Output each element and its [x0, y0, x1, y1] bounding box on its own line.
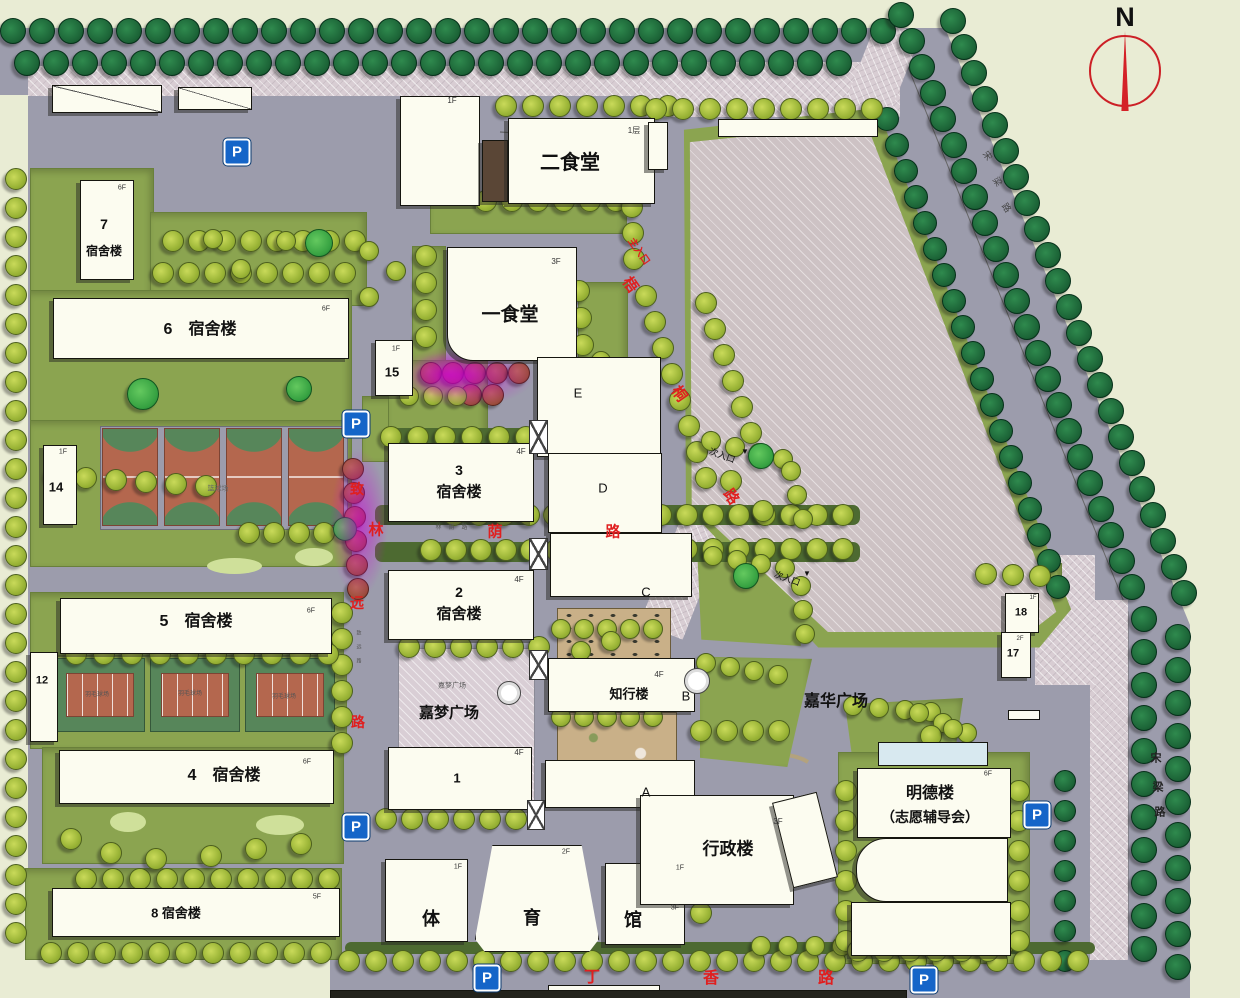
tree-light: [834, 98, 856, 120]
tree-light: [620, 619, 640, 639]
tree-light: [699, 98, 721, 120]
tree-dark: [841, 18, 867, 44]
map-label-二食堂: 二食堂: [540, 153, 600, 173]
tree-light: [204, 262, 226, 284]
tree-dark: [1035, 242, 1061, 268]
tree-dark: [362, 50, 388, 76]
tree-light: [291, 868, 313, 890]
tree-light: [807, 98, 829, 120]
tree-light: [178, 262, 200, 284]
map-label-篮球场: 篮球场: [208, 486, 229, 493]
map-label-2: 2: [455, 585, 463, 599]
mingde-mid: [856, 838, 1008, 902]
mingde-bottom: [851, 902, 1011, 956]
tree-dark: [940, 8, 966, 34]
tree-dark: [1014, 190, 1040, 216]
tree-light: [787, 485, 807, 505]
tree-dark: [1131, 936, 1157, 962]
map-label-3F: 3F: [773, 818, 782, 826]
map-label-宿舍楼: 宿舍楼: [86, 245, 122, 257]
map-label-6F: 6F: [303, 759, 311, 766]
tree-dark: [923, 237, 947, 261]
tree-light: [102, 868, 124, 890]
map-label-荫: 荫: [487, 525, 502, 540]
tree-light: [662, 950, 684, 972]
tree-light: [574, 619, 594, 639]
tree-light: [338, 950, 360, 972]
tree-dark: [1165, 690, 1191, 716]
tree-dark: [696, 18, 722, 44]
tree-light: [94, 942, 116, 964]
tree-dark: [710, 50, 736, 76]
tree-light: [793, 509, 813, 529]
tree-light: [500, 950, 522, 972]
tree-dark: [304, 50, 330, 76]
tree-dark: [951, 34, 977, 60]
bldg-E: [537, 357, 661, 457]
tree-light: [375, 808, 397, 830]
zhixing-bldg: [548, 658, 695, 712]
tree-dark: [826, 50, 852, 76]
map-label-明德楼: 明德楼: [906, 786, 954, 802]
map-label-4F: 4F: [516, 448, 525, 456]
tree-light: [331, 680, 353, 702]
tree-dark: [377, 18, 403, 44]
tree-dark: [1054, 770, 1076, 792]
lawn-blob-2: [110, 812, 146, 832]
covered-bridge-2: [529, 650, 548, 680]
tree-dark: [275, 50, 301, 76]
map-label-4F: 4F: [514, 576, 523, 584]
tree-bright: [305, 229, 333, 257]
map-label-1F: 1F: [447, 97, 456, 105]
tree-dark: [1045, 268, 1071, 294]
campus-map: 二食堂1层1F一食堂3F1F15EDCBA6F7宿舍楼6F6 宿舍楼1F14篮球…: [0, 0, 1240, 998]
tree-light: [40, 942, 62, 964]
tree-dark: [1054, 800, 1076, 822]
map-label-3F: 3F: [551, 258, 560, 266]
tree-light: [806, 538, 828, 560]
tree-dark: [951, 158, 977, 184]
tree-bright: [733, 563, 759, 589]
tree-dark: [551, 18, 577, 44]
carport-west-2: [178, 87, 252, 110]
parking-sign-5: P: [1024, 802, 1051, 829]
tree-dark: [768, 50, 794, 76]
tree-light: [105, 469, 127, 491]
tree-light: [551, 619, 571, 639]
tree-dark: [580, 18, 606, 44]
tree-light: [768, 665, 788, 685]
map-label-4 宿舍楼: 4 宿舍楼: [188, 768, 261, 784]
map-label-1F: 1F: [392, 346, 400, 353]
tree-light: [861, 98, 883, 120]
tree-light: [522, 95, 544, 117]
tree-dark: [1165, 822, 1191, 848]
tree-dark: [812, 18, 838, 44]
tree-dark: [920, 80, 946, 106]
tree-light: [702, 504, 724, 526]
tree-light: [835, 870, 857, 892]
tree-dark: [217, 50, 243, 76]
map-label-远: 远: [356, 646, 361, 651]
bottom-dark-bar: [330, 990, 907, 998]
tree-light: [145, 848, 167, 870]
tree-light: [643, 619, 663, 639]
tree-light: [832, 538, 854, 560]
tree-light: [603, 95, 625, 117]
tree-light: [237, 868, 259, 890]
map-label-羽毛球场: 羽毛球场: [272, 694, 296, 700]
tree-light: [753, 98, 775, 120]
tree-light: [359, 287, 379, 307]
tree-dark: [1109, 548, 1135, 574]
tree-light: [5, 197, 27, 219]
tree-light: [5, 893, 27, 915]
map-label-知行楼: 知行楼: [609, 688, 648, 701]
tree-light: [148, 942, 170, 964]
sidewalk-pavement-3: [1090, 600, 1128, 960]
map-label-6F: 6F: [118, 185, 126, 192]
tree-light: [505, 808, 527, 830]
map-label-1F: 1F: [1029, 595, 1036, 601]
tree-light: [264, 868, 286, 890]
map-label-C: C: [641, 586, 650, 599]
tree-light: [5, 661, 27, 683]
tree-light: [162, 230, 184, 252]
canteen-wall: [482, 140, 508, 202]
tree-dark: [989, 419, 1013, 443]
tree-light: [5, 168, 27, 190]
tree-dark: [961, 60, 987, 86]
tree-dark: [72, 50, 98, 76]
canteen-2-wing: [648, 122, 668, 170]
map-label-12: 12: [36, 676, 48, 687]
tree-light: [5, 690, 27, 712]
tree-dark: [1131, 870, 1157, 896]
tree-dark: [982, 112, 1008, 138]
tree-light: [256, 262, 278, 284]
tree-light: [5, 719, 27, 741]
tree-light: [676, 504, 698, 526]
tree-dark: [435, 18, 461, 44]
map-label-4F: 4F: [654, 671, 663, 679]
tree-dark: [1046, 392, 1072, 418]
tree-dark: [667, 18, 693, 44]
tree-light: [5, 777, 27, 799]
tree-light: [644, 311, 666, 333]
tree-light: [1013, 950, 1035, 972]
tree-dark: [333, 50, 359, 76]
tree-dark: [1129, 476, 1155, 502]
tree-dark: [1165, 789, 1191, 815]
tree-dark: [449, 50, 475, 76]
tree-dark: [1056, 294, 1082, 320]
map-label-A: A: [642, 786, 651, 799]
tree-light: [308, 262, 330, 284]
map-label-14: 14: [49, 481, 63, 494]
tree-dark: [1131, 606, 1157, 632]
tree-light: [156, 868, 178, 890]
tree-dark: [999, 445, 1023, 469]
tree-dark: [783, 18, 809, 44]
tree-light: [780, 98, 802, 120]
map-label-5F: 5F: [313, 894, 321, 901]
tree-dark: [797, 50, 823, 76]
tree-dark: [1131, 837, 1157, 863]
tree-dark: [980, 393, 1004, 417]
tree-dark: [406, 18, 432, 44]
tree-dark: [1165, 723, 1191, 749]
tree-light: [415, 326, 437, 348]
tree-dark: [1165, 855, 1191, 881]
tree-light: [704, 318, 726, 340]
tree-light: [752, 500, 774, 522]
tree-light: [288, 522, 310, 544]
lawn-blob-1: [295, 548, 333, 566]
tree-dark: [1024, 216, 1050, 242]
tree-dark: [754, 18, 780, 44]
tree-light: [716, 950, 738, 972]
tree-light: [5, 400, 27, 422]
parking-sign-1: P: [343, 411, 370, 438]
tree-light: [5, 226, 27, 248]
tree-dark: [972, 210, 998, 236]
tree-dark: [159, 50, 185, 76]
tree-light: [652, 337, 674, 359]
tree-light: [1008, 930, 1030, 952]
tree-dark: [885, 133, 909, 157]
map-label-路: 路: [351, 715, 365, 729]
tree-bright: [748, 443, 774, 469]
tree-light: [5, 574, 27, 596]
tree-dark: [1066, 320, 1092, 346]
tree-light: [661, 363, 683, 385]
tree-light: [943, 719, 963, 739]
tree-dark: [203, 18, 229, 44]
map-label-丁: 丁: [584, 970, 600, 986]
tree-dark: [522, 18, 548, 44]
tree-dark: [1131, 672, 1157, 698]
map-label-路: 路: [356, 660, 361, 665]
tree-dark: [565, 50, 591, 76]
tree-dark: [1035, 366, 1061, 392]
map-label-6F: 6F: [307, 608, 315, 615]
tree-dark: [983, 236, 1009, 262]
tree-light: [401, 808, 423, 830]
tree-dark: [962, 184, 988, 210]
tree-light: [716, 720, 738, 742]
map-label-梁: 梁: [1153, 783, 1164, 794]
map-label-远: 远: [350, 596, 364, 610]
tree-dark: [130, 50, 156, 76]
tree-dark: [1119, 450, 1145, 476]
tree-dark: [348, 18, 374, 44]
tree-light: [5, 603, 27, 625]
tree-dark: [246, 50, 272, 76]
tree-light: [386, 261, 406, 281]
gym-ti: [385, 859, 468, 942]
tree-dark: [1119, 574, 1145, 600]
tree-light: [5, 255, 27, 277]
map-label-E: E: [574, 387, 583, 400]
tree-light: [5, 342, 27, 364]
tree-dark: [188, 50, 214, 76]
tree-dark: [1098, 522, 1124, 548]
tree-dark: [1131, 639, 1157, 665]
tree-light: [795, 624, 815, 644]
tree-dark: [638, 18, 664, 44]
tree-light: [5, 371, 27, 393]
bldg-C: [550, 533, 692, 597]
tree-dark: [1054, 830, 1076, 852]
tree-light: [728, 504, 750, 526]
tree-dark: [1008, 471, 1032, 495]
tree-light: [1008, 900, 1030, 922]
north-label: N: [1089, 2, 1161, 33]
tree-light: [129, 868, 151, 890]
tree-light: [495, 539, 517, 561]
compass-needle-icon: [1118, 31, 1133, 111]
tree-light: [975, 563, 997, 585]
tree-light: [152, 262, 174, 284]
tree-light: [835, 780, 857, 802]
map-label-1F: 1F: [676, 865, 684, 872]
tree-light: [5, 516, 27, 538]
map-label-6F: 6F: [322, 306, 330, 313]
tree-dark: [1165, 954, 1191, 980]
tree-light: [415, 245, 437, 267]
tree-light: [576, 95, 598, 117]
tree-light: [672, 98, 694, 120]
tree-dark: [899, 28, 925, 54]
tree-dark: [101, 50, 127, 76]
tree-dark: [913, 211, 937, 235]
map-label-（志愿辅导会）: （志愿辅导会）: [881, 810, 979, 824]
tree-dark: [536, 50, 562, 76]
tree-dark: [904, 185, 928, 209]
tree-bright: [286, 376, 312, 402]
carport-west: [52, 85, 162, 113]
tree-light: [635, 950, 657, 972]
tree-light: [202, 942, 224, 964]
tree-light: [781, 461, 801, 481]
tree-light: [1008, 870, 1030, 892]
dorm-3: [388, 443, 534, 522]
tree-light: [175, 942, 197, 964]
map-label-B: B: [682, 690, 691, 703]
tree-dark: [420, 50, 446, 76]
tree-dark: [1056, 418, 1082, 444]
tree-light: [5, 284, 27, 306]
tree-dark: [116, 18, 142, 44]
map-label-路: 路: [605, 525, 620, 540]
tree-dark: [145, 18, 171, 44]
map-label-林荫路: 林荫路: [435, 525, 474, 531]
tree-light: [1008, 780, 1030, 802]
map-label-7: 7: [100, 217, 108, 231]
tree-light: [722, 370, 744, 392]
tree-dark: [391, 50, 417, 76]
tree-light: [601, 631, 621, 651]
tree-light: [832, 504, 854, 526]
tree-dark: [942, 289, 966, 313]
tree-light: [479, 808, 501, 830]
gym-yu: [475, 845, 599, 952]
tree-light: [229, 942, 251, 964]
tree-dark: [1165, 921, 1191, 947]
map-label-宋: 宋: [1151, 754, 1162, 765]
map-label-6F: 6F: [984, 771, 992, 778]
tree-light: [183, 868, 205, 890]
tree-light: [1008, 840, 1030, 862]
map-label-宿舍楼: 宿舍楼: [436, 485, 481, 500]
tree-light: [165, 473, 187, 495]
map-label-1: 1: [453, 772, 460, 785]
covered-bridge-1: [529, 538, 548, 570]
mingde-canopy: [878, 742, 988, 766]
tree-light: [231, 259, 251, 279]
tree-dark: [993, 262, 1019, 288]
tree-light: [703, 546, 723, 566]
tree-dark: [1067, 444, 1093, 470]
tree-dark: [951, 315, 975, 339]
tree-light: [263, 522, 285, 544]
tree-light: [608, 950, 630, 972]
tree-light: [283, 942, 305, 964]
tree-light: [768, 720, 790, 742]
tree-dark: [1054, 890, 1076, 912]
tree-light: [238, 522, 260, 544]
map-label-6 宿舍楼: 6 宿舍楼: [164, 322, 237, 338]
map-label-D: D: [598, 482, 607, 495]
tree-dark: [261, 18, 287, 44]
tree-light: [835, 810, 857, 832]
map-label-1F: 1F: [454, 864, 462, 871]
map-label-一食堂: 一食堂: [481, 306, 538, 325]
map-label-▼: ▼: [741, 448, 749, 456]
tree-dark: [1108, 424, 1134, 450]
lawn-blob-3: [256, 815, 304, 835]
tree-dark: [1054, 860, 1076, 882]
tree-dark: [888, 2, 914, 28]
tree-dark: [961, 341, 985, 365]
tree-light: [527, 950, 549, 972]
tree-dark: [1088, 496, 1114, 522]
tree-light: [331, 732, 353, 754]
tree-dark: [174, 18, 200, 44]
tree-dark: [43, 50, 69, 76]
tree-light: [690, 902, 712, 924]
tree-light: [689, 950, 711, 972]
tree-dark: [1140, 502, 1166, 528]
tree-dark: [909, 54, 935, 80]
canteen-annex: [400, 96, 480, 206]
tree-light: [427, 808, 449, 830]
map-label-18: 18: [1015, 608, 1027, 619]
tree-dark: [1171, 580, 1197, 606]
tree-light: [1067, 950, 1089, 972]
tree-dark: [1165, 888, 1191, 914]
tree-light: [720, 657, 740, 677]
tree-light: [359, 241, 379, 261]
parking-sign-0: P: [224, 139, 251, 166]
tree-light: [731, 396, 753, 418]
map-label-路: 路: [1155, 808, 1166, 819]
tree-dark: [1003, 164, 1029, 190]
tree-light: [240, 230, 262, 252]
tree-dark: [1077, 346, 1103, 372]
